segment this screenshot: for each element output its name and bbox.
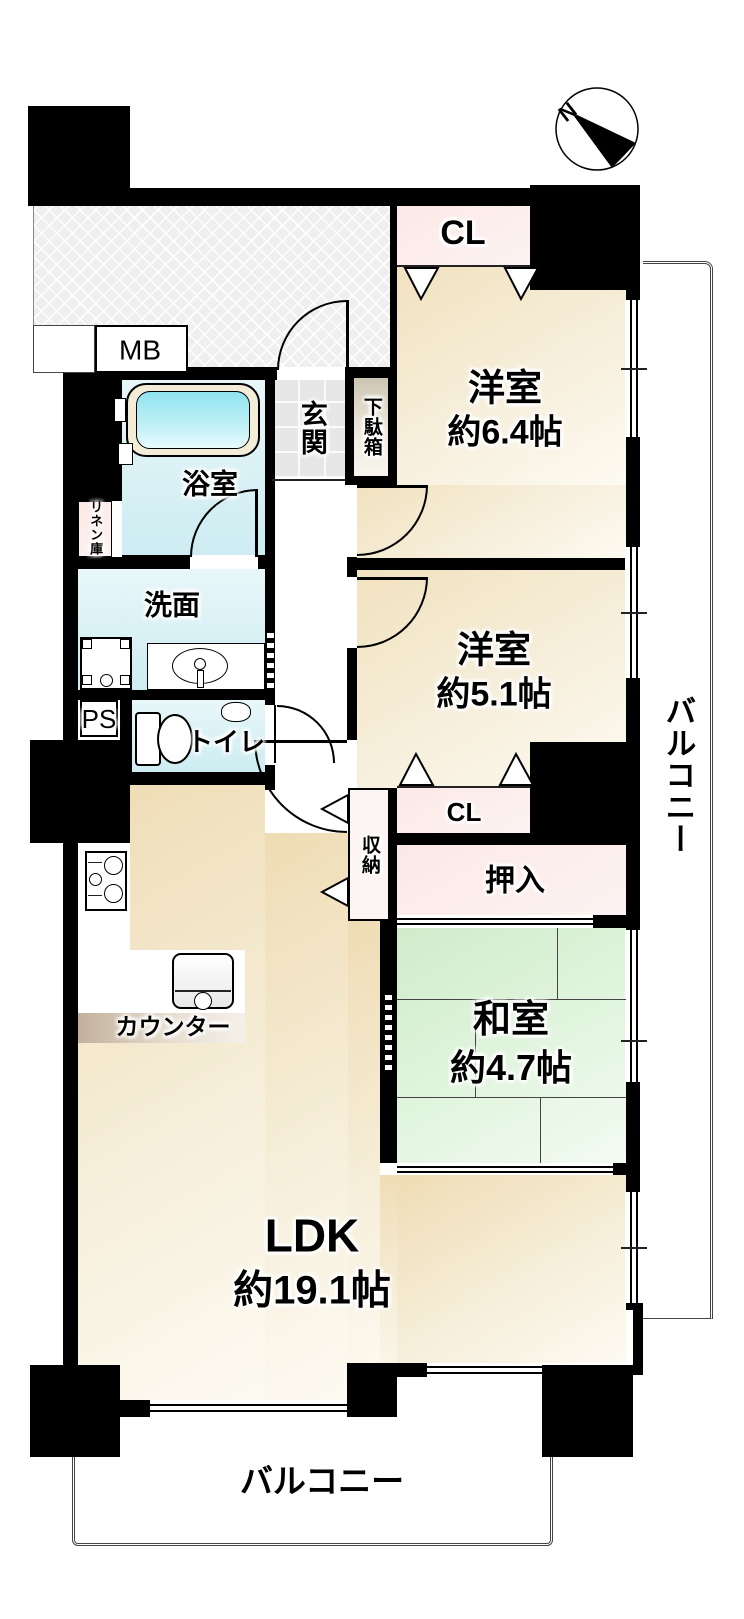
room-label-closet-top: CL [440,212,485,255]
label-closet-mid: CL [447,796,482,829]
western1-area: 約6.4帖 [447,412,562,455]
label-meter-box: MB [119,333,161,368]
japanese-area: 約4.7帖 [450,1044,572,1089]
label-toilet: トイレ [187,726,265,759]
room-label-western2: 洋室 約5.1帖 [436,628,551,717]
ldk-name: LDK [233,1207,391,1265]
folding-door-icon [505,268,538,299]
room-label-japanese: 和室 約4.7帖 [450,997,572,1090]
room-label-ldk: LDK 約19.1帖 [233,1207,391,1315]
label-balcony-bottom: バルコニー [240,1460,404,1501]
floor-plan: N CL 洋室 約6.4帖 洋室 約5.1帖 和室 約4.7帖 LDK 約19.… [0,0,744,1619]
label-storage: 収納 [357,835,381,875]
folding-door-icon [322,795,348,823]
western2-area: 約5.1帖 [436,674,551,717]
folding-door-icon [322,878,348,906]
western2-name: 洋室 [436,628,551,674]
label-pipe-space: PS [82,703,117,736]
label-entrance: 玄関 [294,400,328,456]
folding-door-icon [400,754,433,785]
label-washroom: 洗面 [144,588,200,623]
compass-icon: N [554,88,638,170]
label-linen-closet: リネン庫 [87,500,103,556]
label-shoe-cabinet: 下駄箱 [359,397,383,457]
western1-name: 洋室 [447,366,562,412]
folding-door-icon [405,268,438,299]
label-balcony-right: バルコニー [658,695,697,855]
label-bathroom: 浴室 [182,467,238,502]
folding-door-icon [500,754,533,785]
room-label-western1: 洋室 約6.4帖 [447,366,562,455]
ldk-area: 約19.1帖 [233,1265,391,1315]
plan-symbols: N [0,0,744,1619]
japanese-name: 和室 [450,997,572,1045]
label-futon-closet: 押入 [485,862,545,900]
label-counter: カウンター [116,1013,231,1042]
